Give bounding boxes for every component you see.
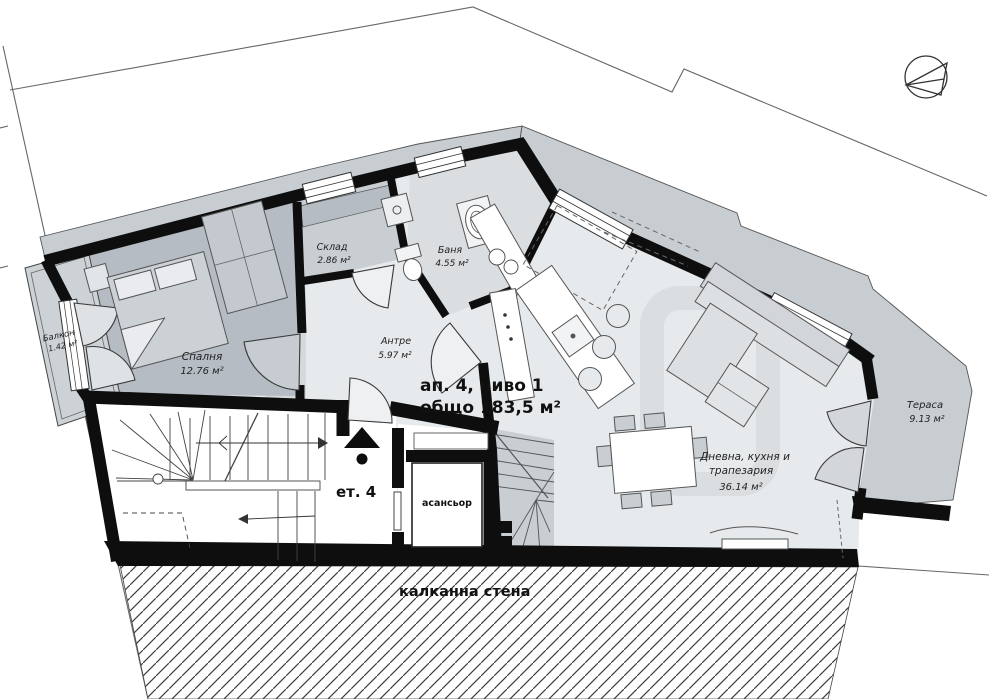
label-living-name-1: Дневна, кухня и bbox=[699, 451, 790, 463]
label-terrace-name: Тераса bbox=[907, 400, 943, 411]
kitchen-sink-2 bbox=[504, 260, 518, 274]
stair-landing-rail bbox=[186, 481, 320, 490]
bar-stool-1 bbox=[607, 305, 630, 328]
dining-chair bbox=[597, 446, 613, 467]
bar-stool-2 bbox=[593, 336, 616, 359]
bar-stool-3 bbox=[579, 368, 602, 391]
stair-newel bbox=[153, 474, 163, 484]
dining-chair bbox=[621, 493, 642, 509]
label-bedroom-name: Спалня bbox=[182, 351, 223, 363]
label-bath-area: 4.55 м² bbox=[435, 259, 469, 269]
floor-plan-page: 1 bbox=[0, 0, 989, 699]
apartment-title-line1: ап. 4, ниво 1 bbox=[420, 376, 544, 396]
site-boundary-bottom-right bbox=[858, 566, 989, 575]
floor-marker-dot-icon bbox=[357, 454, 368, 465]
floor-marker-label: ет. 4 bbox=[336, 483, 376, 501]
dining-chair bbox=[644, 413, 665, 429]
dining-chair bbox=[651, 490, 672, 506]
elevator-machine-box bbox=[414, 433, 488, 449]
label-storage-area: 2.86 м² bbox=[317, 256, 351, 266]
firewall-label: калканна стена bbox=[399, 584, 530, 600]
label-hallway-area: 5.97 м² bbox=[378, 351, 412, 361]
floor-plan-canvas: 1 bbox=[0, 0, 989, 699]
stair-hall-floor bbox=[90, 400, 398, 560]
label-terrace-area: 9.13 м² bbox=[909, 414, 944, 425]
dining-chair bbox=[614, 415, 635, 431]
label-bedroom-area: 12.76 м² bbox=[180, 366, 223, 377]
label-living-name-2: трапезария bbox=[709, 465, 773, 477]
label-bath-name: Баня bbox=[438, 245, 463, 256]
elevator-label: асансьор bbox=[422, 498, 472, 509]
apartment-title-line2: общо 183,5 м² bbox=[420, 398, 561, 418]
boundary-tick-1 bbox=[0, 126, 8, 128]
label-hallway-name: Антре bbox=[380, 336, 411, 347]
elevator-door bbox=[394, 492, 401, 530]
kitchen-sink-1 bbox=[489, 249, 505, 265]
label-storage-name: Склад bbox=[317, 242, 348, 253]
north-arrow-icon bbox=[905, 56, 947, 98]
label-living-area: 36.14 м² bbox=[719, 482, 762, 493]
dining-table bbox=[610, 426, 697, 493]
boundary-tick-2 bbox=[0, 266, 8, 268]
